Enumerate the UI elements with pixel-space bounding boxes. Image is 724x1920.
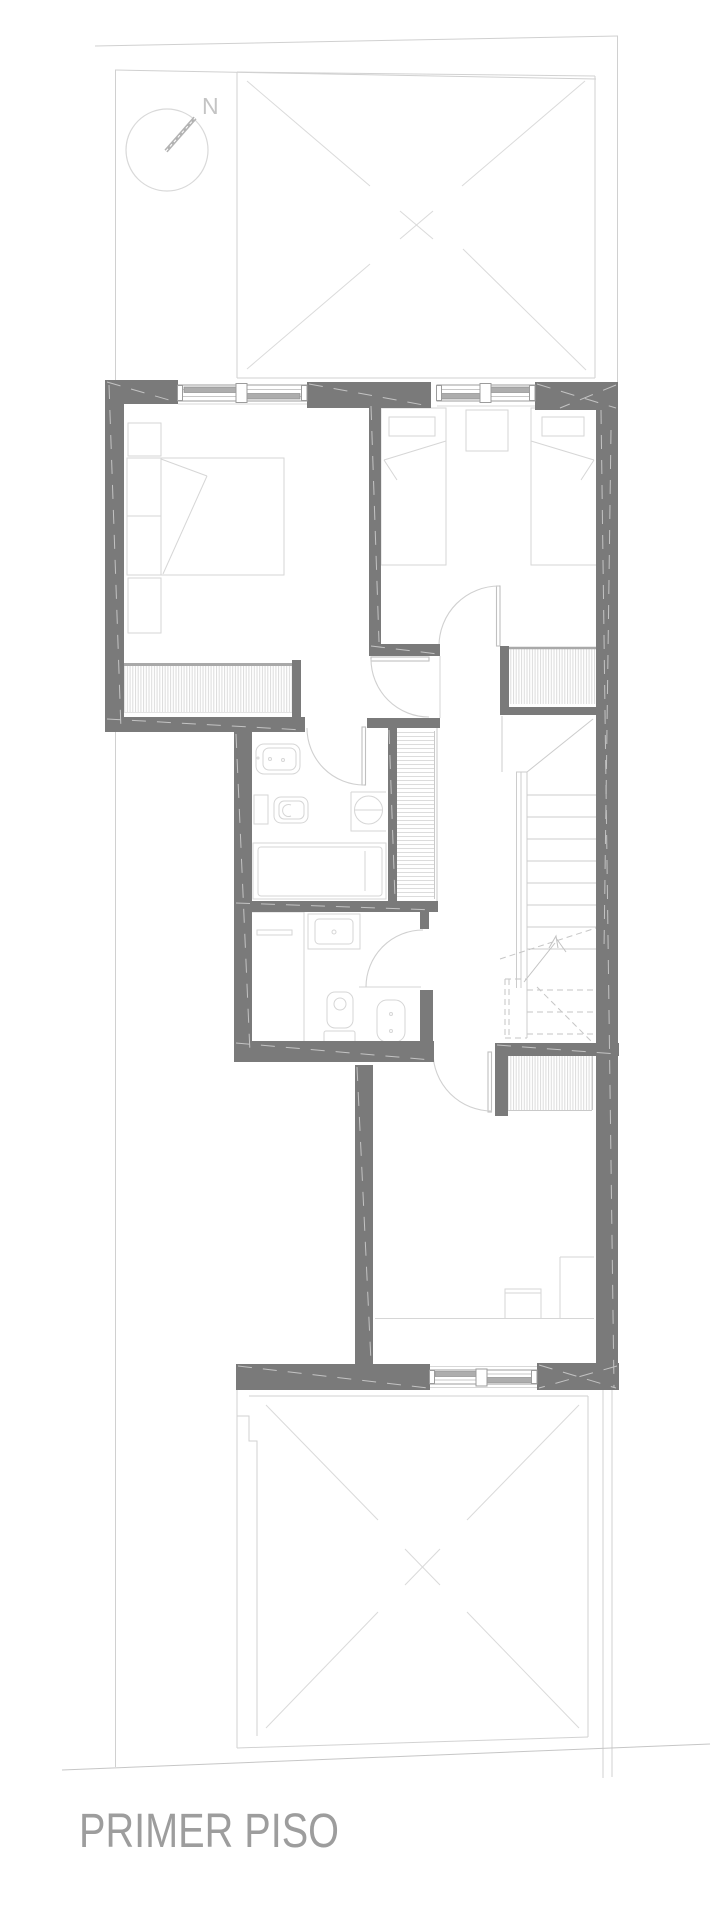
- svg-text:N: N: [202, 93, 219, 119]
- svg-text:PRIMER PISO: PRIMER PISO: [79, 1805, 339, 1858]
